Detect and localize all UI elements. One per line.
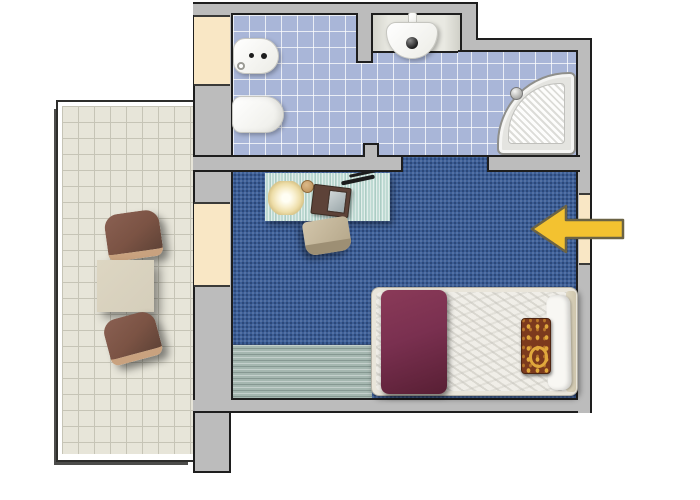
floor-plan [0,0,700,500]
entrance-arrow-layer [0,0,700,500]
entrance-arrow [532,206,623,252]
